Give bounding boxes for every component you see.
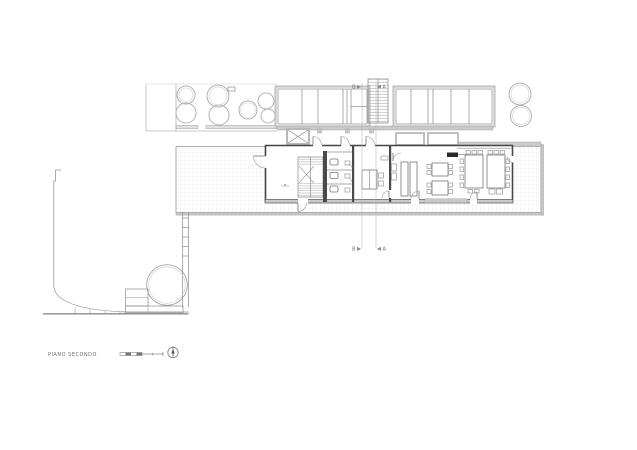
circular-structure [147, 265, 188, 306]
building [254, 129, 515, 212]
sink-icon [345, 188, 350, 192]
conference-table [487, 155, 505, 188]
entry-vestibule [396, 133, 424, 145]
dining-table [432, 181, 448, 195]
title-block: PIANO SECONDO [48, 346, 178, 358]
tree-icon [176, 103, 196, 123]
service-wall [352, 145, 354, 202]
door-post [370, 129, 374, 133]
section-label-b-bottom: B [352, 247, 356, 253]
dining-table [432, 163, 448, 176]
scale-bar [120, 352, 163, 356]
tree-icon [261, 109, 275, 123]
section-label-a-top: A [383, 85, 387, 91]
planter-edge [206, 126, 277, 129]
door-post [318, 129, 322, 133]
north-arrow-icon [168, 346, 178, 357]
chair-icon [427, 190, 431, 194]
chair-icon [427, 165, 431, 169]
cabinet [381, 156, 388, 160]
planter-edge [176, 126, 198, 129]
chair-icon [379, 181, 384, 186]
tree-icon [209, 105, 229, 125]
plan-title: PIANO SECONDO [48, 352, 97, 358]
tree-icon [258, 93, 274, 109]
site-boundary-south-west [43, 170, 189, 314]
tree-icon [509, 83, 531, 105]
chair-icon [427, 183, 431, 187]
tree-icon [177, 86, 195, 104]
tree-icon [239, 101, 257, 119]
kitchen-island [410, 162, 417, 196]
boundary-curve [54, 287, 189, 312]
kitchen-island [401, 162, 408, 196]
tree-icon [207, 85, 229, 107]
bench [425, 199, 467, 203]
garden-fixture [228, 87, 235, 91]
roof-terrace-right [394, 87, 495, 127]
chair-icon [427, 171, 431, 175]
chair-icon [449, 183, 453, 187]
tv-screen [447, 153, 458, 158]
chair-icon [449, 165, 453, 169]
toilet-icon [330, 186, 338, 192]
garden-north-west [146, 84, 277, 131]
entry-vestibule [428, 133, 458, 145]
chair-icon [449, 171, 453, 175]
sink-icon [345, 174, 350, 178]
toilet-icon [330, 159, 338, 165]
section-label-a-bottom: A [383, 247, 387, 253]
chair-icon [379, 173, 384, 178]
service-wall [323, 151, 327, 202]
section-label-b-top: B [352, 85, 356, 91]
door-post [346, 129, 350, 133]
appliance [392, 164, 397, 171]
conference-table [465, 155, 483, 188]
toilet-icon [330, 173, 338, 179]
appliance [392, 173, 397, 180]
tree-icon [511, 106, 532, 127]
chair-icon [449, 190, 453, 194]
plan-drawing: B B A A [0, 0, 637, 450]
roof-terrace-left [276, 87, 370, 127]
floor-plan-sheet: B B A A [0, 0, 637, 450]
trees-north-east [509, 83, 532, 127]
